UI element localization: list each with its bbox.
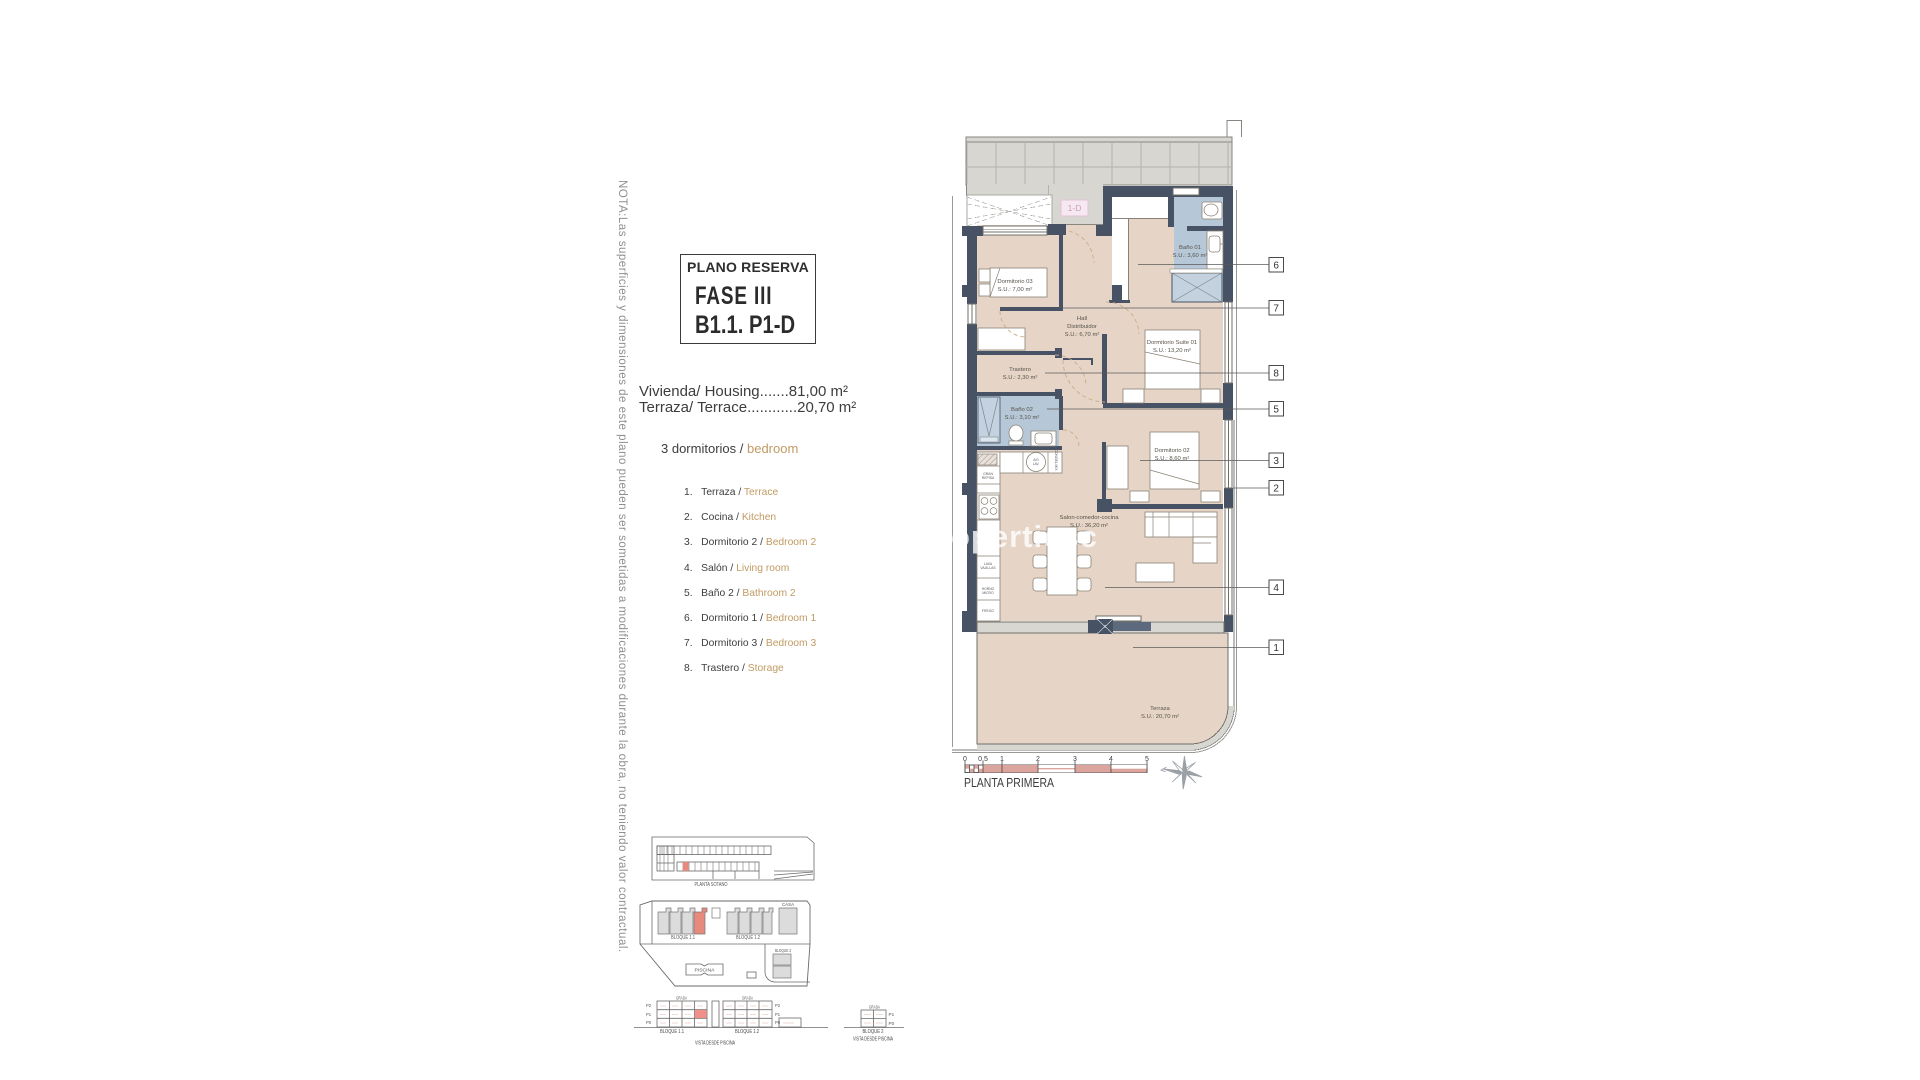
svg-text:VAJILLAS: VAJILLAS bbox=[980, 566, 996, 570]
svg-text:1: 1 bbox=[1273, 643, 1279, 654]
svg-text:P2: P2 bbox=[646, 1003, 652, 1008]
svg-text:5: 5 bbox=[1273, 405, 1279, 416]
svg-text:S.U.: 3,10 m²: S.U.: 3,10 m² bbox=[1005, 415, 1040, 421]
svg-text:VISTA DESDE PISCINA: VISTA DESDE PISCINA bbox=[853, 1037, 893, 1043]
svg-text:Distribuidor: Distribuidor bbox=[1067, 324, 1097, 330]
svg-text:BLOQUE 1.1: BLOQUE 1.1 bbox=[660, 1029, 684, 1035]
svg-text:1: 1 bbox=[1000, 756, 1004, 763]
svg-text:GRADA: GRADA bbox=[676, 996, 687, 1001]
svg-text:S.U.: 8,60 m²: S.U.: 8,60 m² bbox=[1155, 456, 1190, 462]
svg-text:P2: P2 bbox=[775, 1003, 781, 1008]
svg-text:4: 4 bbox=[1109, 756, 1113, 763]
svg-text:Dormitorio 03: Dormitorio 03 bbox=[997, 279, 1033, 285]
svg-text:0.5: 0.5 bbox=[978, 756, 988, 763]
svg-text:BLOQUE 2: BLOQUE 2 bbox=[863, 1029, 884, 1035]
svg-text:P1: P1 bbox=[775, 1012, 781, 1017]
svg-text:2: 2 bbox=[1273, 484, 1279, 495]
svg-text:4: 4 bbox=[1273, 583, 1279, 594]
svg-text:7: 7 bbox=[1273, 304, 1279, 315]
svg-text:BLOQUE 2: BLOQUE 2 bbox=[775, 948, 791, 953]
svg-text:GRADA: GRADA bbox=[869, 1005, 881, 1010]
svg-text:S.U.: 13,20 m²: S.U.: 13,20 m² bbox=[1153, 348, 1191, 354]
svg-text:Dormitorio Suite 01: Dormitorio Suite 01 bbox=[1147, 340, 1197, 346]
svg-text:PLANTA SOTANO: PLANTA SOTANO bbox=[695, 882, 729, 888]
svg-text:BLOQUE 1.2: BLOQUE 1.2 bbox=[735, 1029, 759, 1035]
svg-text:S.U.: 3,60 m²: S.U.: 3,60 m² bbox=[1173, 253, 1208, 259]
svg-text:GRADA: GRADA bbox=[742, 996, 753, 1001]
svg-text:0: 0 bbox=[963, 756, 967, 763]
svg-text:2: 2 bbox=[1036, 756, 1040, 763]
svg-text:FREGO: FREGO bbox=[982, 609, 994, 613]
svg-text:VISTA DESDE PISCINA: VISTA DESDE PISCINA bbox=[695, 1041, 735, 1047]
svg-text:BLOQUE 1.1: BLOQUE 1.1 bbox=[671, 935, 695, 941]
svg-text:PISCINA: PISCINA bbox=[695, 968, 716, 973]
svg-text:P0: P0 bbox=[646, 1020, 652, 1025]
svg-text:CASA: CASA bbox=[782, 902, 794, 907]
svg-text:Baño 01: Baño 01 bbox=[1179, 245, 1201, 251]
svg-text:PLANTA PRIMERA: PLANTA PRIMERA bbox=[964, 776, 1055, 790]
svg-text:P1: P1 bbox=[889, 1012, 895, 1017]
svg-text:P1: P1 bbox=[646, 1012, 652, 1017]
svg-text:Baño 02: Baño 02 bbox=[1011, 407, 1033, 413]
svg-text:8: 8 bbox=[1273, 369, 1279, 380]
svg-text:S.U.: 2,30 m²: S.U.: 2,30 m² bbox=[1003, 375, 1038, 381]
svg-text:MICRO: MICRO bbox=[982, 591, 994, 595]
svg-text:3: 3 bbox=[1073, 756, 1077, 763]
svg-text:5: 5 bbox=[1145, 756, 1149, 763]
svg-text:CONGEL MIX: CONGEL MIX bbox=[1054, 449, 1058, 471]
svg-text:Hall: Hall bbox=[1077, 316, 1087, 322]
svg-text:LAV.: LAV. bbox=[1033, 462, 1040, 466]
svg-text:S.U.: 20,70 m²: S.U.: 20,70 m² bbox=[1141, 714, 1179, 720]
svg-text:Terraza: Terraza bbox=[1150, 706, 1170, 712]
svg-text:3: 3 bbox=[1273, 456, 1279, 467]
svg-text:1-D: 1-D bbox=[1068, 203, 1082, 213]
svg-text:P0: P0 bbox=[889, 1021, 895, 1026]
svg-text:REPISA: REPISA bbox=[982, 476, 995, 480]
svg-text:6: 6 bbox=[1273, 261, 1279, 272]
svg-text:S.U.: 7,00 m²: S.U.: 7,00 m² bbox=[998, 287, 1033, 293]
svg-text:S.U.: 6,70 m²: S.U.: 6,70 m² bbox=[1065, 332, 1100, 338]
svg-text:P0: P0 bbox=[775, 1020, 781, 1025]
svg-text:Dormitorio 02: Dormitorio 02 bbox=[1154, 448, 1189, 454]
svg-text:Trastero: Trastero bbox=[1009, 367, 1031, 373]
svg-text:BLOQUE 1.2: BLOQUE 1.2 bbox=[736, 935, 760, 941]
